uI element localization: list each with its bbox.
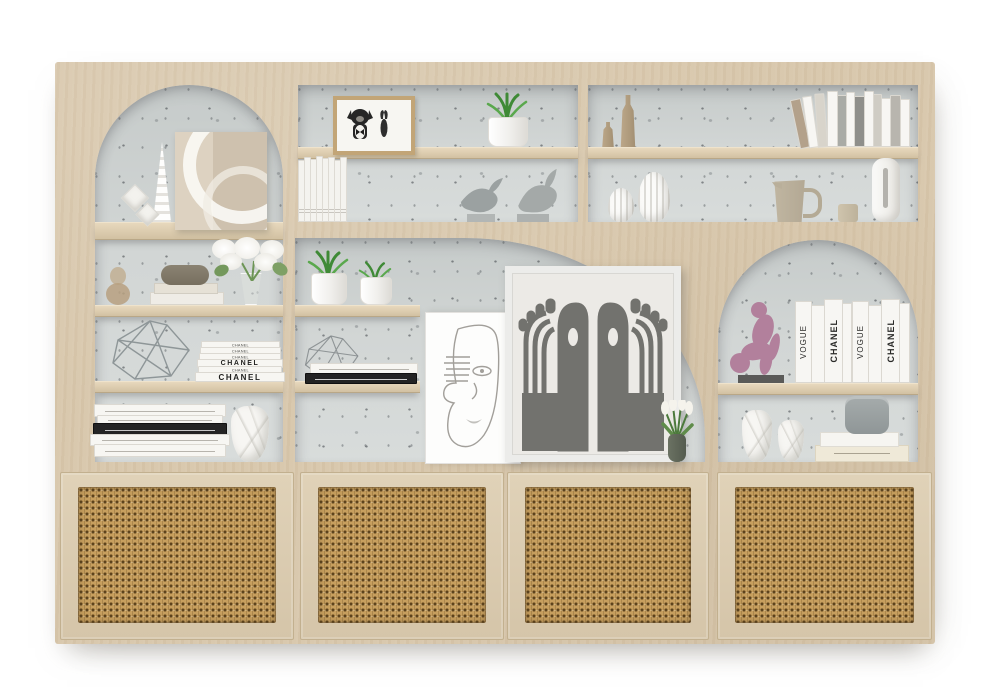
spine-text-lines (108, 420, 212, 421)
two-book-stack (305, 363, 417, 382)
cane-panel-4 (735, 487, 914, 623)
spine-text-lines (105, 411, 214, 412)
bird-figurine-right (506, 166, 569, 222)
spine-text-lines (105, 430, 216, 431)
potted-grass-plant (478, 98, 536, 147)
white-plant-pot (488, 117, 528, 147)
ribbed-gourd-vase-small (608, 188, 634, 222)
figurine-body (728, 299, 790, 377)
spine-text-lines (102, 440, 218, 441)
pink-crouching-figurine (728, 300, 790, 383)
white-plant-pot (360, 277, 392, 305)
book (899, 303, 910, 383)
bird-figurine-left (457, 176, 505, 216)
gray-rounded-box (845, 396, 889, 434)
round-lid-box (161, 265, 209, 285)
cane-panel-2 (318, 487, 486, 623)
right-top-shelf (588, 147, 918, 159)
candle (838, 204, 858, 222)
wall-unit-bookshelf: CHANEL CHANEL CHANEL CHANEL CHANEL CHANE… (55, 62, 935, 644)
cane-panel-1 (78, 487, 276, 623)
book (811, 305, 825, 383)
book-stack-with-gray-box (815, 396, 915, 462)
white-plant-pot (311, 273, 347, 305)
green-glass-vase (668, 434, 686, 462)
chanel-book-stack: CHANEL CHANEL CHANEL CHANEL CHANEL CHANE… (195, 342, 283, 382)
potted-grass-plant-a (305, 255, 351, 305)
pitcher-handle (803, 188, 822, 218)
book (868, 305, 882, 383)
vase-bottom-bulb (106, 283, 130, 305)
beige-pitcher (772, 180, 824, 222)
left-column-shelf-2 (95, 305, 283, 317)
chanel-spine: CHANEL (829, 319, 839, 363)
dog-illustration (340, 102, 400, 142)
book (900, 99, 910, 147)
vogue-chanel-book-row: VOGUE CHANEL VOGUE CHANEL (795, 300, 917, 383)
cream-book (815, 445, 909, 462)
white-tulip-vase (655, 400, 699, 462)
vase-slot (883, 168, 888, 208)
white-book (820, 432, 899, 447)
bird-figurines (455, 174, 567, 222)
ribbed-gourd-vase-tall (638, 172, 670, 222)
chanel-spine: CHANEL (886, 319, 896, 363)
vogue-spine: VOGUE (799, 325, 808, 359)
cabinet-door-2 (300, 472, 504, 640)
left-column-shelf-3 (95, 381, 283, 393)
chanel-large-spine: CHANEL (219, 373, 262, 382)
spine-text-lines (319, 369, 408, 370)
white-book (340, 157, 347, 222)
cabinet-door-4 (717, 472, 932, 640)
abstract-arc-canvas (175, 132, 267, 230)
potted-grass-plant-b (355, 265, 395, 305)
dog-portrait-frame (333, 96, 415, 155)
leaning-book-row (800, 92, 918, 147)
right-arch-shelf (718, 383, 918, 395)
hourglass-glass-vase (103, 267, 133, 305)
white-book-row (298, 158, 350, 222)
cabinet-door-3 (507, 472, 709, 640)
cane-panel-3 (525, 487, 691, 623)
book (842, 303, 852, 383)
slot-vase (872, 158, 900, 222)
vogue-spine: VOGUE (856, 325, 865, 359)
horizontal-book-stack (90, 406, 228, 462)
cabinet-door-1 (60, 472, 294, 640)
center-floating-shelf-1 (295, 305, 420, 317)
spine-text-lines (105, 451, 214, 452)
product-render-page: { "scene": { "description": "Light oak w… (0, 0, 1000, 700)
spine-text-lines (834, 453, 889, 454)
hands-arch-print (512, 273, 674, 455)
white-hydrangea-bouquet (210, 237, 290, 305)
spine-text-lines (315, 379, 407, 380)
wire-polyhedron-sculpture (105, 318, 195, 382)
